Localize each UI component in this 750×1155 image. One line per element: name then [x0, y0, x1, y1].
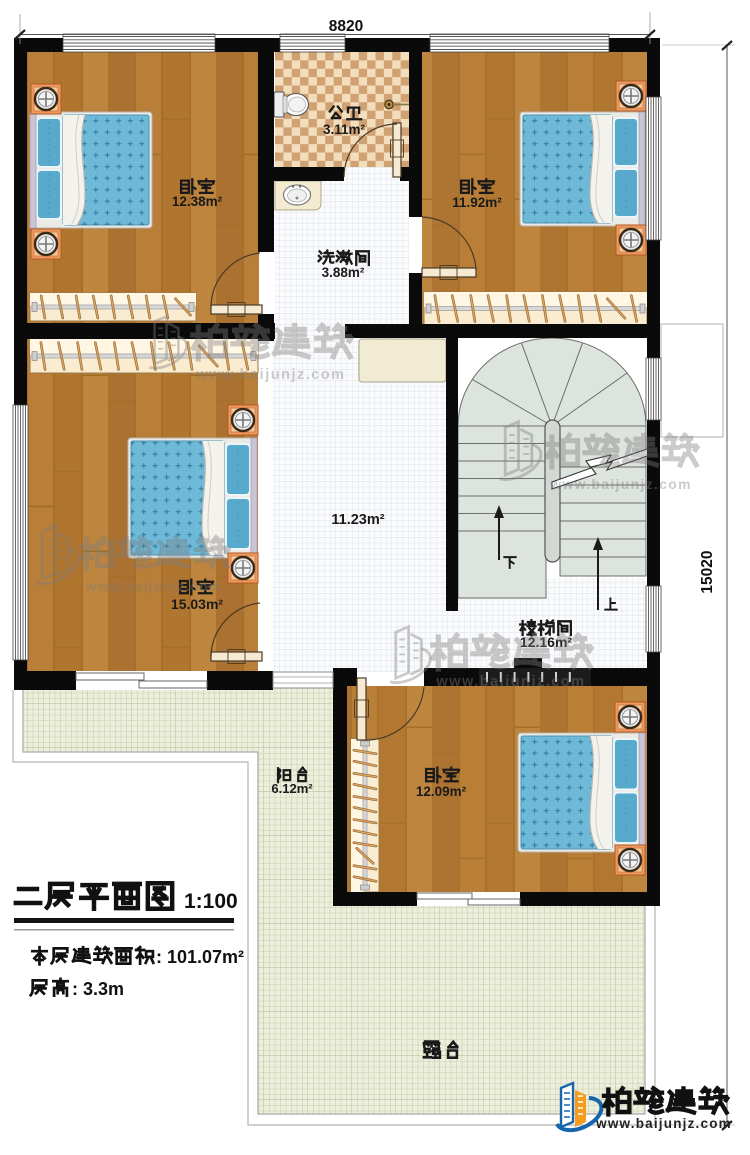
svg-text:: 101.07m²: : 101.07m²	[156, 947, 244, 967]
svg-text:11.23m²: 11.23m²	[331, 512, 384, 528]
svg-text:www.baijunjz.com: www.baijunjz.com	[85, 579, 222, 594]
svg-text:8820: 8820	[329, 18, 363, 35]
svg-text:: 3.3m: : 3.3m	[72, 979, 124, 999]
svg-text:12.09m²: 12.09m²	[416, 784, 467, 799]
svg-text:3.88m²: 3.88m²	[322, 265, 365, 280]
svg-text:3.11m²: 3.11m²	[323, 122, 366, 137]
svg-text:11.92m²: 11.92m²	[452, 195, 502, 210]
svg-text:www.baijunjz.com: www.baijunjz.com	[549, 476, 692, 492]
svg-text:15.03m²: 15.03m²	[171, 596, 223, 612]
svg-text:www.baijunjz.com: www.baijunjz.com	[435, 674, 585, 690]
svg-text:www.baijunjz.com: www.baijunjz.com	[195, 367, 345, 383]
svg-text:6.12m²: 6.12m²	[271, 781, 313, 796]
svg-text:www.baijunjz.com: www.baijunjz.com	[595, 1116, 732, 1131]
svg-text:1:100: 1:100	[184, 890, 238, 913]
svg-text:15020: 15020	[699, 550, 716, 593]
svg-text:12.38m²: 12.38m²	[172, 194, 223, 209]
